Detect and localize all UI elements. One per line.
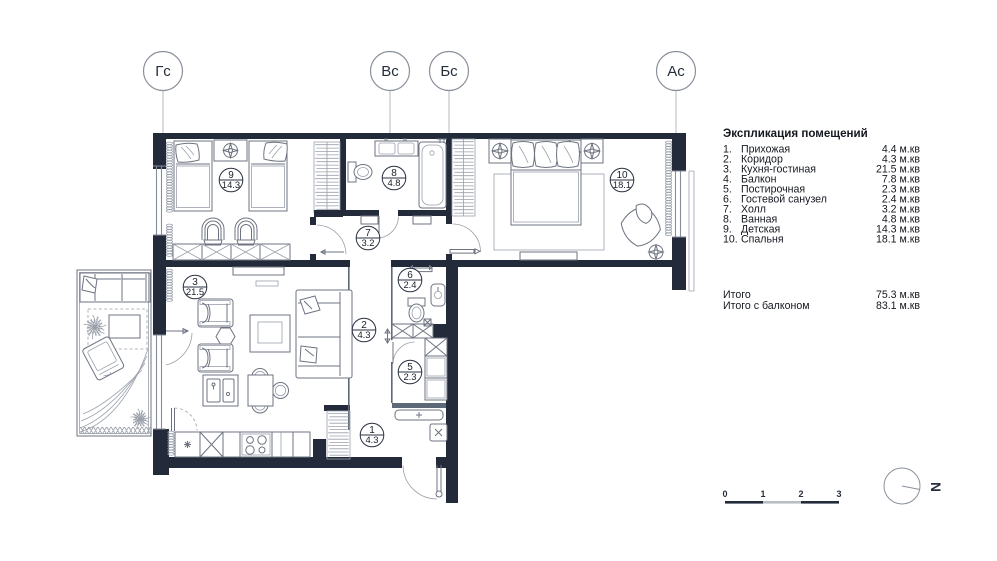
svg-text:10.: 10. <box>723 234 738 246</box>
svg-text:83.1 м.кв: 83.1 м.кв <box>876 300 920 312</box>
svg-text:18.1: 18.1 <box>613 179 631 190</box>
svg-text:18.1 м.кв: 18.1 м.кв <box>876 234 920 246</box>
svg-text:Вс: Вс <box>381 63 399 80</box>
svg-text:3.2: 3.2 <box>361 237 374 248</box>
svg-text:14.3: 14.3 <box>222 179 240 190</box>
svg-text:2: 2 <box>798 489 803 499</box>
svg-text:Ас: Ас <box>667 63 685 80</box>
svg-text:1: 1 <box>760 489 765 499</box>
svg-text:Экспликация помещений: Экспликация помещений <box>723 127 868 140</box>
svg-text:2.4: 2.4 <box>403 279 416 290</box>
svg-text:4.3: 4.3 <box>357 329 370 340</box>
svg-text:3: 3 <box>836 489 841 499</box>
svg-text:4.3: 4.3 <box>365 434 378 445</box>
svg-text:Итого с балконом: Итого с балконом <box>723 300 810 312</box>
svg-text:21.5: 21.5 <box>186 286 204 297</box>
svg-text:Гс: Гс <box>155 63 171 80</box>
svg-text:4.8: 4.8 <box>387 177 400 188</box>
svg-text:0: 0 <box>722 489 727 499</box>
svg-text:N: N <box>928 482 943 492</box>
svg-text:2.3: 2.3 <box>403 371 416 382</box>
svg-text:Бс: Бс <box>440 63 458 80</box>
svg-text:Спальня: Спальня <box>741 234 784 246</box>
